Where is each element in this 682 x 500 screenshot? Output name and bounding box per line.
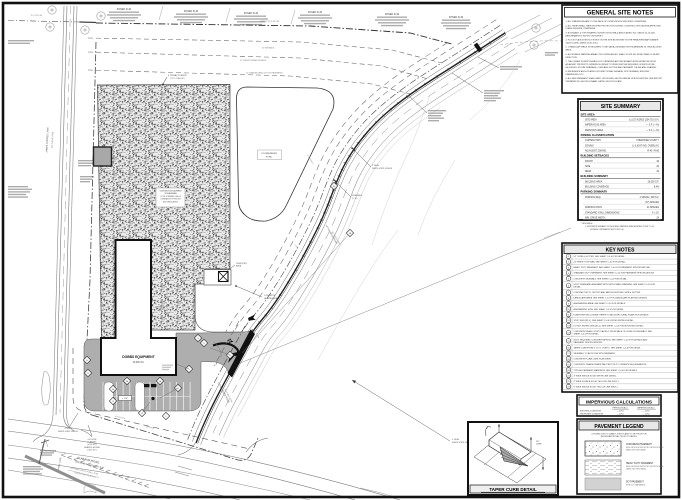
- svg-text:PARKING REQ.: PARKING REQ.: [585, 196, 601, 199]
- svg-text:ZONED R-40: ZONED R-40: [117, 8, 132, 11]
- svg-text:GRANITE MOUND: GRANITE MOUND: [84, 446, 101, 449]
- svg-text:DATED GEOTECH DATE): DATED GEOTECH DATE): [626, 448, 646, 451]
- svg-text:GDOT STANDARD ADA RAMP WITH DE: GDOT STANDARD ADA RAMP WITH DETECTABLE W…: [574, 283, 656, 286]
- svg-text:GENERAL SITE NOTES: GENERAL SITE NOTES: [587, 11, 654, 17]
- svg-text:CONSTRUCTION EQUIPMENT: CONSTRUCTION EQUIPMENT: [159, 191, 181, 193]
- svg-text:INCLUDING: STORM DRAINAGE, CUR: INCLUDING: STORM DRAINAGE, CURB AND GUTT…: [566, 66, 658, 69]
- svg-text:ADA PARKING SIGN. SEE SHEET C-: ADA PARKING SIGN. SEE SHEET C-4.0 FOR DE…: [574, 308, 625, 311]
- svg-text:TAPER CURB FROM 6" TO 0" OVER: TAPER CURB FROM 6" TO 0" OVER 5'. SEE SH…: [574, 347, 642, 350]
- svg-text:20' GRADING AND UTILITY EASEME: 20' GRADING AND UTILITY EASEMENT: [246, 72, 283, 75]
- svg-text:STORMWATER: STORMWATER: [261, 152, 277, 155]
- svg-text:(5' W): (5' W): [352, 198, 358, 200]
- svg-text:IMPERVIOUS CALCULATIONS: IMPERVIOUS CALCULATIONS: [586, 399, 652, 404]
- svg-text:* INDICATES:: * INDICATES:: [581, 222, 593, 225]
- svg-text:CONCRETE SIDEWALK. SEE SHEET C: CONCRETE SIDEWALK. SEE SHEET C-4.0 FOR D…: [574, 277, 628, 280]
- svg-text:CONCRETE TRANSFORMER PAD PER U: CONCRETE TRANSFORMER PAD PER UTILITY OWN…: [574, 363, 648, 366]
- svg-text:24" WHITE STOP BAR. SEE SHEET: 24" WHITE STOP BAR. SEE SHEET C-4.0 FOR …: [574, 261, 627, 264]
- svg-text:(TYP. OPAQUE): (TYP. OPAQUE): [170, 77, 185, 80]
- svg-text:PROPOSED CONDITION: PROPOSED CONDITION: [580, 413, 604, 415]
- svg-text:REVIEW/APPROVAL PRIOR TO PAVIN: REVIEW/APPROVAL PRIOR TO PAVING.: [601, 435, 638, 438]
- svg-text:LANDSCAPE AREA. SEE SHEET L-1.: LANDSCAPE AREA. SEE SHEET L-1.0 FOR LAND…: [574, 297, 648, 300]
- svg-text:ZONING CLASSIFICATION: ZONING CLASSIFICATION: [581, 133, 615, 137]
- svg-text:8.4%: 8.4%: [654, 187, 659, 189]
- svg-text:CONTRACTOR TO TIE INTO AND MAT: CONTRACTOR TO TIE INTO AND MATCH EXISTIN…: [574, 291, 642, 294]
- svg-text:GDOT REQUIRED CONCRETE APRON.: GDOT REQUIRED CONCRETE APRON. SEE SHEET …: [574, 338, 648, 341]
- svg-text:ZONED R-40: ZONED R-40: [244, 12, 259, 15]
- svg-text:WHITE VINYL FENCE: WHITE VINYL FENCE: [58, 431, 79, 433]
- svg-text:MIN. DRIVE WIDTH: MIN. DRIVE WIDTH: [585, 217, 606, 219]
- svg-text:1. INDICATES NUMBER OF REQUI: 1. INDICATES NUMBER OF REQUIRED PARKING …: [585, 225, 654, 228]
- svg-text:ADA PARKING AREA. SEE SHEET C-: ADA PARKING AREA. SEE SHEET C-4.0 FOR DE…: [574, 302, 627, 305]
- svg-text:IMPERVIOUS AREA: IMPERVIOUS AREA: [585, 124, 606, 127]
- svg-text:— (±%): — (±%): [643, 411, 650, 413]
- svg-text:POND: POND: [266, 157, 273, 159]
- svg-text:1 SPACE / 300 S.F.: 1 SPACE / 300 S.F.: [640, 196, 660, 199]
- svg-text:DUMPSTER ENCLOSURE. REFER TO A: DUMPSTER ENCLOSURE. REFER TO ARCHITECTUR…: [574, 313, 650, 316]
- svg-text:ADJACENT ZONING: ADJACENT ZONING: [585, 149, 606, 152]
- svg-text:AISLE.: AISLE.: [566, 49, 573, 52]
- svg-text:4. FLOOD PLAIN DOES NOT EXIST: 4. FLOOD PLAIN DOES NOT EXIST ON THE SIT…: [566, 39, 659, 42]
- svg-text:ZONED R-40: ZONED R-40: [184, 10, 199, 13]
- svg-text:(ZONING ORDINANCE SECTION 19.4: (ZONING ORDINANCE SECTION 19.4): [590, 228, 624, 231]
- svg-text:8. REFERENCE ARCH PLANS FOR DI: 8. REFERENCE ARCH PLANS FOR DIRECTIONAL …: [566, 70, 650, 73]
- svg-text:CONTRACTOR TO SUBMIT JOINT PLA: CONTRACTOR TO SUBMIT JOINT PLANS TO GEOT…: [591, 433, 647, 436]
- svg-text:CONCRETE PAVEMENT: CONCRETE PAVEMENT: [626, 443, 652, 446]
- svg-text:6' PRIVACY FENCE: 6' PRIVACY FENCE: [168, 74, 187, 77]
- svg-text:(67) SPACES: (67) SPACES: [645, 201, 659, 204]
- svg-text:— (±%): — (±%): [643, 413, 650, 415]
- svg-text:TAPER CURB DETAIL: TAPER CURB DETAIL: [489, 487, 536, 492]
- svg-text:CONCRETE WHEEL STOP PLACED 2': CONCRETE WHEEL STOP PLACED 2' FROM FACE …: [574, 330, 653, 333]
- svg-text:2. ALL TREES SHALL HAVE PROPER: 2. ALL TREES SHALL HAVE PROPER PROTECTIO…: [566, 24, 662, 27]
- svg-text:SIDE: SIDE: [585, 166, 591, 168]
- svg-text:WHITE VINYL FENCE: WHITE VINYL FENCE: [372, 168, 393, 170]
- svg-text:DETAIL.: DETAIL.: [574, 286, 582, 289]
- svg-text:R-40 / R-80: R-40 / R-80: [647, 150, 659, 152]
- svg-text:SITE SUMMARY: SITE SUMMARY: [601, 104, 641, 110]
- svg-text:EXISTING CONDITION: EXISTING CONDITION: [580, 411, 602, 413]
- svg-text:25' SETBACK: 25' SETBACK: [262, 47, 275, 50]
- svg-text:SITE AREA: SITE AREA: [581, 112, 595, 116]
- svg-text:DOBBS EQUIPMENT: DOBBS EQUIPMENT: [122, 355, 154, 359]
- svg-text:STANDARD DUTY PAVEMENT. SEE SH: STANDARD DUTY PAVEMENT. SEE SHEET C-4.0 …: [574, 272, 656, 275]
- svg-text:4" WIDE SINGLE SOLID YELLOW LI: 4" WIDE SINGLE SOLID YELLOW LINE (SSYL).: [574, 386, 619, 388]
- svg-text:9' x 19': 9' x 19': [652, 212, 660, 214]
- svg-text:N 88°41'13" E 612.63': N 88°41'13" E 612.63': [260, 21, 280, 23]
- svg-text:ZONED R-40: ZONED R-40: [449, 16, 464, 19]
- svg-text:PARKING SUMMARY: PARKING SUMMARY: [581, 190, 608, 194]
- svg-text:24 SPACES: 24 SPACES: [647, 206, 660, 209]
- svg-text:DIMENSIONS, ETC.: DIMENSIONS, ETC.: [566, 74, 585, 76]
- svg-text:3. BOUNDARY & TOPOGRAPHIC SURV: 3. BOUNDARY & TOPOGRAPHIC SURVEY BY BUTK…: [566, 31, 657, 34]
- svg-text:TYPICAL PAVEMENT MARKINGS. SEE: TYPICAL PAVEMENT MARKINGS. SEE SHEET C-4…: [574, 369, 638, 372]
- svg-text:1. ALL DIMENSIONS ARE TO THE F: 1. ALL DIMENSIONS ARE TO THE FACE OF CUR…: [566, 20, 648, 23]
- svg-text:REAR: REAR: [585, 170, 592, 173]
- svg-text:EX. R/W LINE: EX. R/W LINE: [31, 15, 43, 17]
- svg-text:± TOP: ± TOP: [122, 398, 128, 400]
- svg-text:25' UNDISTURBED BUFFER: 25' UNDISTURBED BUFFER: [240, 60, 267, 62]
- svg-text:13057C0105E, DATED 03-07-2013.: 13057C0105E, DATED 03-07-2013.: [566, 41, 599, 44]
- svg-text:ADJACENT PROPERTY OWNERS IN OR: ADJACENT PROPERTY OWNERS IN ORDER TO PER…: [566, 63, 656, 66]
- svg-text:LI (LIGHT IND. OVERLAY): LI (LIGHT IND. OVERLAY): [632, 144, 659, 147]
- svg-text:BUILDING SUMMARY: BUILDING SUMMARY: [581, 174, 609, 178]
- svg-text:(PER DOT STANDARDS): (PER DOT STANDARDS): [626, 484, 646, 487]
- svg-text:PREPARED BY GEOTECH NAME, DATE: PREPARED BY GEOTECH NAME, DATED GEOTECH …: [566, 80, 623, 83]
- svg-text:DOT PAVEMENT: DOT PAVEMENT: [626, 481, 644, 484]
- svg-text:— S.F. (—%): — S.F. (—%): [646, 125, 659, 127]
- svg-text:JURISDICTION: JURISDICTION: [585, 140, 601, 142]
- svg-text:4' HIGH: 4' HIGH: [452, 439, 460, 441]
- svg-text:AREA: AREA: [236, 265, 242, 268]
- svg-text:4" WIDE DOUBLE SOLID YELLOW LI: 4" WIDE DOUBLE SOLID YELLOW LINE (DSYL).: [574, 381, 620, 383]
- svg-text:BUILDING COVERAGE: BUILDING COVERAGE: [585, 186, 610, 189]
- svg-text:HEAVY DUTY PAVEMENT. SEE SHEET: HEAVY DUTY PAVEMENT. SEE SHEET C-4.0 FOR…: [574, 266, 651, 269]
- svg-text:— S.F. (—%): — S.F. (—%): [646, 130, 659, 132]
- svg-text:PAVEMENT SPECIFICATIONS.: PAVEMENT SPECIFICATIONS.: [574, 341, 603, 344]
- svg-text:6. ACCESSIBLE PARKING AREAS, I: 6. ACCESSIBLE PARKING AREAS, INCLUDING A…: [566, 53, 661, 56]
- svg-text:STANDARD STALL DIMENSIONS: STANDARD STALL DIMENSIONS: [585, 211, 620, 214]
- svg-text:HEAVY DUTY PAVEMENT: HEAVY DUTY PAVEMENT: [626, 462, 654, 465]
- svg-text:24" CURB & GUTTER. SEE SHEET C: 24" CURB & GUTTER. SEE SHEET C-4.0 FOR D…: [574, 255, 626, 258]
- svg-text:SIDEWALK TO BE FLUSH WITH PAVE: SIDEWALK TO BE FLUSH WITH PAVEMENT.: [574, 352, 617, 355]
- svg-text:(AGGREGATE): (AGGREGATE): [264, 297, 278, 300]
- svg-text:±1.517 ACRES (234,710 S.F.): ±1.517 ACRES (234,710 S.F.): [629, 119, 659, 122]
- svg-text:PLANS INDICATE OTHERWISE.: PLANS INDICATE OTHERWISE.: [566, 27, 597, 30]
- svg-text:BENCHMARKS IS NOTED ON SURVEY.: BENCHMARKS IS NOTED ON SURVEY.: [566, 34, 604, 37]
- svg-text:FRONT: FRONT: [585, 161, 593, 163]
- svg-text:PARKING PROV.: PARKING PROV.: [585, 206, 603, 209]
- svg-text:BUILDING AREA: BUILDING AREA: [585, 180, 603, 183]
- svg-text:SIDEWALK: SIDEWALK: [352, 194, 363, 197]
- svg-text:2' HIGH: 2' HIGH: [372, 165, 380, 167]
- svg-text:4" WIDE SINGLE SOLID WHITE LIN: 4" WIDE SINGLE SOLID WHITE LINE (SSWL).: [574, 375, 618, 377]
- svg-text:— (±%): — (±%): [617, 413, 624, 415]
- svg-text:20,000 S.F.: 20,000 S.F.: [648, 181, 660, 183]
- svg-text:DO NOT ENTER SIGN (R5-1). SEE: DO NOT ENTER SIGN (R5-1). SEE SHEET C-4.…: [574, 324, 645, 327]
- svg-text:BUILDING SETBACKS: BUILDING SETBACKS: [581, 154, 610, 158]
- svg-text:KEY NOTES: KEY NOTES: [606, 248, 635, 254]
- svg-text:5. 1 HANDICAP SPACE IS REQUIRE: 5. 1 HANDICAP SPACE IS REQUIRED TO BE VA…: [566, 46, 663, 49]
- svg-text:ZONING: ZONING: [585, 145, 594, 147]
- svg-text:— (±%): — (±%): [617, 411, 624, 413]
- svg-text:7. THE OWNER IS RESPONSIBLE FO: 7. THE OWNER IS RESPONSIBLE FOR OBTAININ…: [566, 60, 656, 63]
- svg-text:ZONED R-40: ZONED R-40: [385, 13, 400, 16]
- svg-text:CONCRETE FLUME. (SEE PLAN VIEW: CONCRETE FLUME. (SEE PLAN VIEW): [574, 358, 612, 361]
- svg-text:STOP SIGN (R1-1). SEE SHEET C-: STOP SIGN (R1-1). SEE SHEET C-4.0 FOR MO…: [574, 319, 635, 322]
- svg-text:20,000 S.F.: 20,000 S.F.: [133, 362, 145, 364]
- svg-text:CURB: CURB: [536, 444, 542, 446]
- svg-text:PAVEMENT LEGEND: PAVEMENT LEGEND: [594, 424, 644, 430]
- svg-text:SITE AREA: SITE AREA: [585, 119, 597, 122]
- svg-text:CHEROKEE COUNTY: CHEROKEE COUNTY: [636, 140, 659, 142]
- svg-text:ZONED R-40: ZONED R-40: [308, 11, 323, 14]
- svg-text:SHEET C-4.0 FOR DETAIL.: SHEET C-4.0 FOR DETAIL.: [574, 333, 600, 336]
- svg-text:(±250 S.F.): (±250 S.F.): [87, 449, 97, 451]
- svg-text:4' HIGH: 4' HIGH: [64, 428, 72, 430]
- svg-text:DATED GEOTECH DATE): DATED GEOTECH DATE): [626, 467, 646, 470]
- svg-text:9. ALL NEW PAVEMENT SHALL MEET: 9. ALL NEW PAVEMENT SHALL MEET OR EXCEED…: [566, 77, 664, 80]
- svg-text:DIRECTION.: DIRECTION.: [566, 57, 578, 59]
- svg-text:PERVIOUS AREA: PERVIOUS AREA: [585, 129, 604, 132]
